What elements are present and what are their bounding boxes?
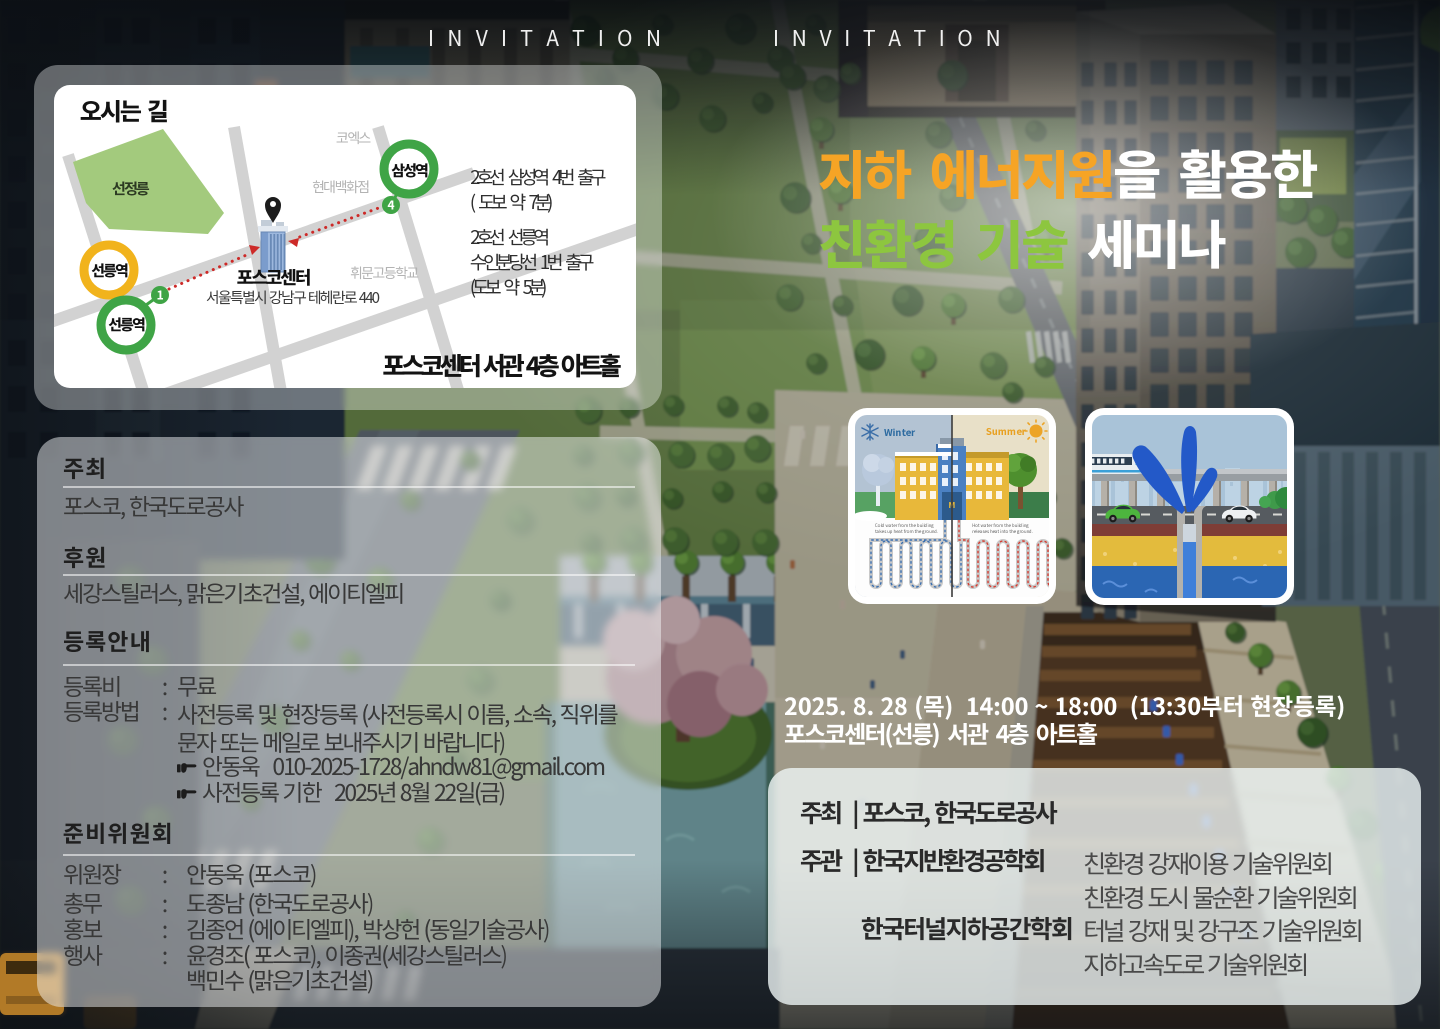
svg-text:Winter: Winter: [884, 425, 916, 439]
svg-text:takes up heat from the ground.: takes up heat from the ground.: [874, 529, 938, 535]
svg-text:1: 1: [156, 287, 163, 304]
svg-text:4: 4: [387, 197, 395, 214]
svg-text:releases heat into the ground.: releases heat into the ground.: [972, 529, 1033, 535]
svg-text:Summer: Summer: [986, 424, 1027, 438]
